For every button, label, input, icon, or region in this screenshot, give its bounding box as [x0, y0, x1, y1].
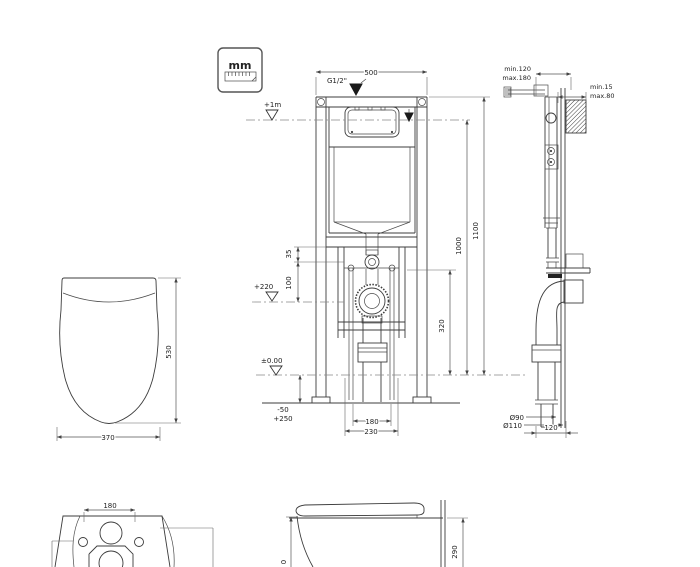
dim-120-label: 120: [544, 424, 557, 432]
adjust-high-label: +250: [273, 415, 292, 423]
dim-35-label: 35: [285, 250, 293, 259]
frame-depth-max-label: max.180: [502, 74, 531, 82]
dim-1100-label: 1100: [472, 222, 480, 240]
dim-1000-label: 1000: [455, 237, 463, 255]
technical-drawing-page: mm: [0, 0, 700, 567]
adjust-low-label: -50: [277, 406, 288, 414]
dim-100-label: 100: [285, 276, 293, 289]
fill-valve-icon: [405, 109, 413, 121]
level-1m-marker-icon: [266, 110, 278, 120]
dim-partial-label: 0: [280, 560, 288, 564]
units-box: mm: [218, 48, 262, 92]
front-view: 500 G1/2" +1m +220 ±0.00 35 100 320 1000…: [246, 69, 528, 436]
dim-290-label: 290: [451, 545, 459, 558]
dim-370-label: 370: [101, 434, 114, 442]
water-connection-label: G1/2": [327, 77, 347, 85]
wall-panel-hatch: [566, 100, 586, 133]
level-220-label: +220: [254, 283, 273, 291]
dim-320-label: 320: [438, 319, 446, 332]
level-zero-label: ±0.00: [261, 357, 282, 365]
units-label: mm: [229, 59, 252, 72]
dim-230-label: 230: [364, 428, 377, 436]
frame-depth-min-label: min.120: [504, 65, 531, 73]
pan-side-view: 290 0: [280, 500, 468, 567]
water-connection-marker-icon: [350, 84, 362, 95]
installation-drawing: mm: [0, 0, 700, 567]
panel-max-label: max.80: [590, 92, 615, 100]
level-1m-label: +1m: [264, 101, 281, 109]
rear-dim-180-label: 180: [103, 502, 116, 510]
level-220-marker-icon: [266, 292, 278, 301]
side-view: min.120 max.180 min.15 max.80 Ø90 Ø110 1…: [502, 65, 614, 438]
pan-top-view: 530 370: [57, 278, 181, 442]
drain-pipe-label: Ø110: [503, 422, 522, 430]
level-zero-marker-icon: [270, 366, 282, 375]
dim-180-label: 180: [365, 418, 378, 426]
pan-rear-view: 180: [52, 502, 213, 567]
drain-outer-label: Ø90: [510, 414, 524, 422]
panel-min-label: min.15: [590, 83, 613, 91]
dim-500-label: 500: [364, 69, 377, 77]
dim-530-label: 530: [165, 345, 173, 358]
